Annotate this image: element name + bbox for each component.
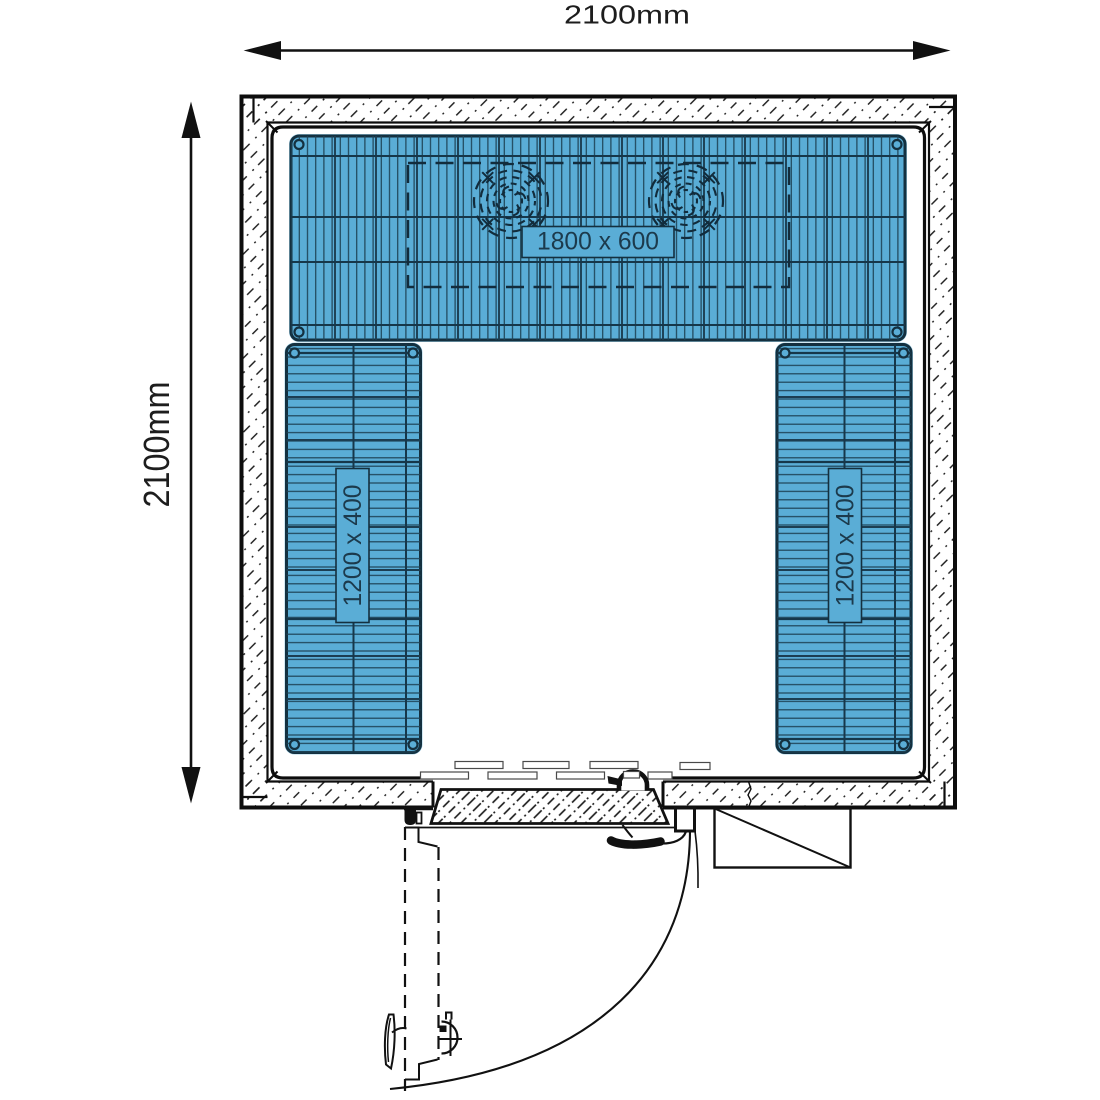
svg-text:2100mm: 2100mm [564, 0, 690, 30]
svg-text:1200 x 400: 1200 x 400 [832, 485, 860, 607]
svg-text:2100mm: 2100mm [136, 382, 177, 508]
svg-text:1800 x 600: 1800 x 600 [537, 228, 659, 256]
svg-text:1200 x 400: 1200 x 400 [339, 485, 367, 607]
